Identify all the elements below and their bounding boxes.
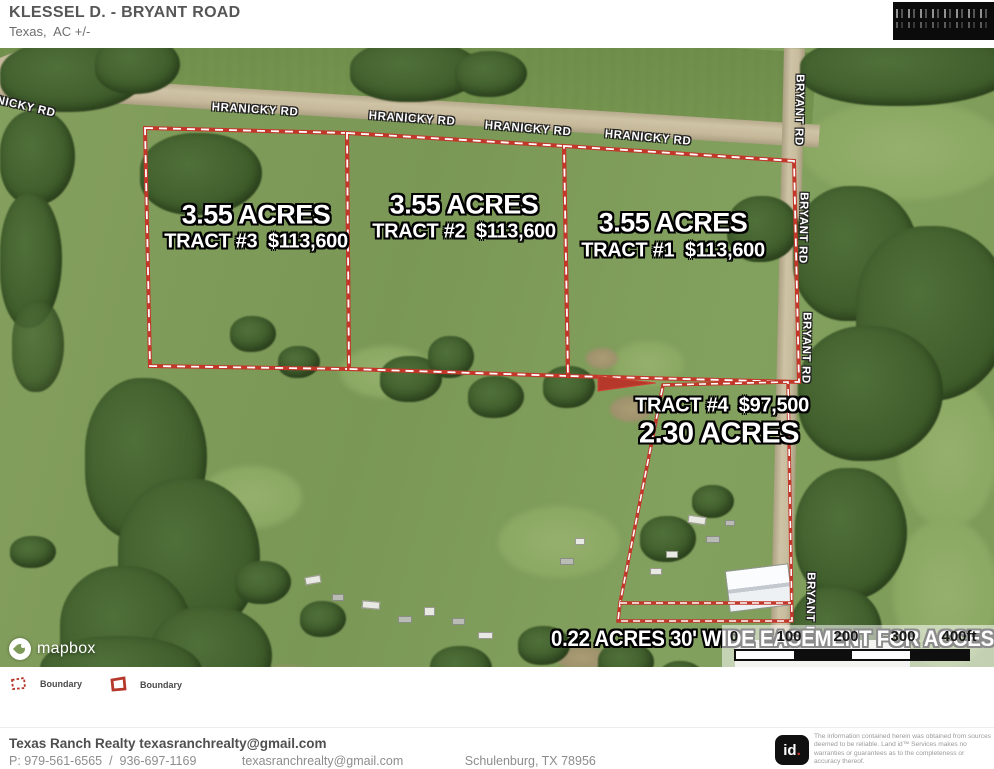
land-id-logo: id. [775, 735, 809, 765]
boundary-overlay [0, 48, 994, 667]
tract-1-detail: TRACT #1 $113,600 [581, 240, 765, 263]
tract-4-detail: TRACT #4 $97,500 [635, 395, 809, 418]
contact-address: Schulenburg, TX 78956 [465, 754, 596, 768]
tract-2-boundary [347, 133, 568, 376]
tract-1-acres: 3.55 ACRES [599, 208, 748, 239]
legend-item-boundary-dashed[interactable]: Boundary [10, 676, 82, 692]
scale-bar-panel: 0 100 200 300 400ft [722, 625, 994, 667]
tract-1-boundary [564, 146, 799, 382]
tract-3-detail: TRACT #3 $113,600 [164, 231, 348, 254]
dashed-boundary-icon [10, 676, 28, 692]
footer: Texas Ranch Realty texasranchrealty@gmai… [0, 727, 994, 769]
road-label-bryant-3: BRYANT RD [799, 312, 812, 384]
company-line: Texas Ranch Realty texasranchrealty@gmai… [9, 736, 327, 751]
disclaimer-text: The information contained herein was obt… [814, 733, 992, 766]
land-id-dot: . [797, 742, 801, 759]
legend-label: Boundary [40, 679, 82, 689]
tract-2-detail: TRACT #2 $113,600 [372, 221, 556, 244]
mapbox-icon [9, 638, 31, 660]
legend: Boundary Boundary [0, 667, 994, 712]
mapbox-attribution[interactable]: mapbox [9, 636, 96, 662]
solid-boundary-icon [108, 676, 128, 693]
legend-item-boundary-solid[interactable]: Boundary [108, 676, 182, 693]
page-title: KLESSEL D. - BRYANT ROAD [9, 4, 241, 22]
land-id-text: id [783, 742, 796, 759]
brand-logo [893, 2, 994, 40]
tract-2-acres: 3.55 ACRES [390, 190, 539, 221]
scale-tick-400ft: 400ft [941, 628, 976, 645]
phone-numbers: P: 979-561-6565 / 936-697-1169 [9, 754, 196, 768]
scale-bar [734, 649, 970, 661]
road-label-bryant-1: BRYANT RD [792, 74, 805, 146]
tract-3-acres: 3.55 ACRES [182, 200, 331, 231]
satellite-map[interactable]: ANICKY RD HRANICKY RD HRANICKY RD HRANIC… [0, 48, 994, 667]
scale-tick-0: 0 [730, 628, 738, 645]
contact-line: P: 979-561-6565 / 936-697-1169 texasranc… [9, 754, 596, 768]
page-subtitle: Texas, AC +/- [9, 24, 90, 39]
scale-tick-200: 200 [833, 628, 858, 645]
header: KLESSEL D. - BRYANT ROAD Texas, AC +/- [0, 0, 994, 48]
scale-tick-100: 100 [776, 628, 801, 645]
road-label-bryant-2: BRYANT RD [796, 192, 809, 264]
legend-label: Boundary [140, 680, 182, 690]
tract-4-acres: 2.30 ACRES [639, 418, 799, 451]
scale-tick-300: 300 [890, 628, 915, 645]
contact-email[interactable]: texasranchrealty@gmail.com [242, 754, 403, 768]
mapbox-wordmark: mapbox [37, 640, 96, 658]
